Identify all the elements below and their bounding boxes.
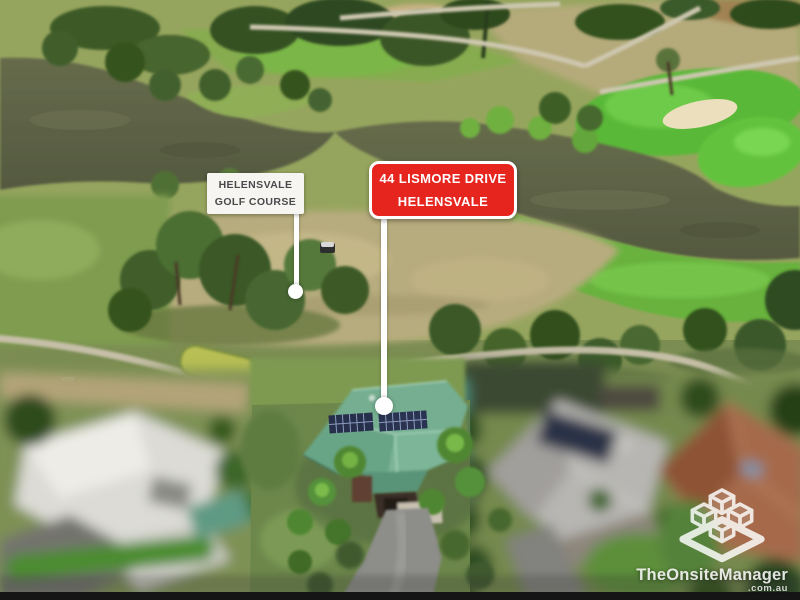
property-leader-dot	[375, 397, 393, 415]
golf-course-leader-line	[294, 212, 299, 288]
golf-course-label: HELENSVALE GOLF COURSE	[207, 173, 304, 214]
golf-course-leader-dot	[288, 284, 303, 299]
golf-course-label-line2: GOLF COURSE	[215, 194, 296, 211]
property-address-line1: 44 LISMORE DRIVE	[379, 167, 506, 190]
golf-cart	[320, 242, 335, 253]
property-address-line2: HELENSVALE	[398, 190, 488, 213]
aerial-property-photo: HELENSVALE GOLF COURSE 44 LISMORE DRIVE …	[0, 0, 800, 600]
stacked-cubes-logo-icon	[674, 479, 770, 565]
watermark-suffix-text: .com.au	[748, 583, 788, 594]
watermark-brand-text: TheOnsiteManager	[636, 567, 788, 583]
property-address-label: 44 LISMORE DRIVE HELENSVALE	[369, 161, 517, 219]
property-leader-line	[381, 217, 387, 401]
golf-course-label-line1: HELENSVALE	[219, 177, 293, 194]
watermark: TheOnsiteManager .com.au	[636, 479, 788, 594]
neighbor-house-left	[0, 370, 266, 600]
